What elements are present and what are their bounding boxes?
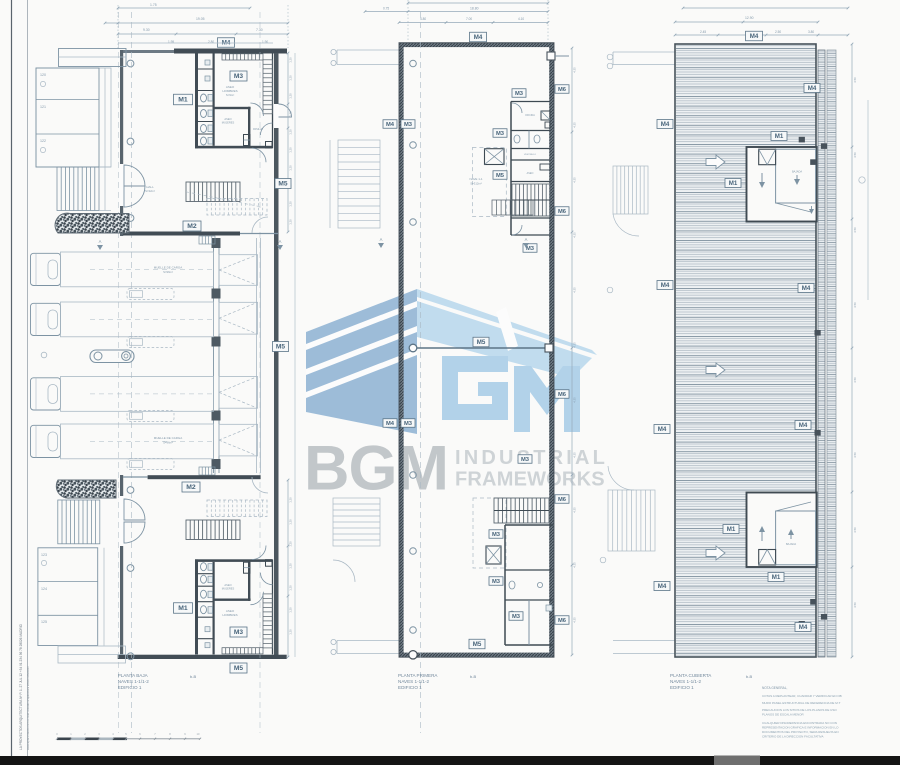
svg-text:4.10: 4.10 [518,17,524,21]
svg-text:CUALQUIER DISCREPANCIA ENCONTR: CUALQUIER DISCREPANCIA ENCONTRADA NO CON [762,721,837,725]
svg-text:ASEO: ASEO [224,583,231,587]
svg-text:PASILLO: PASILLO [253,128,263,131]
svg-text:4.35: 4.35 [573,617,577,623]
svg-text:4.35: 4.35 [573,562,577,568]
svg-text:M3: M3 [492,579,501,585]
svg-text:M3: M3 [404,421,413,427]
svg-text:M5: M5 [496,173,505,179]
svg-text:4.35: 4.35 [573,287,577,293]
svg-text:M4: M4 [802,285,811,292]
svg-text:4.35: 4.35 [573,342,577,348]
svg-text:1.20: 1.20 [289,563,293,569]
svg-text:M3: M3 [404,122,413,128]
svg-text:ASEO: ASEO [224,117,231,121]
svg-text:b-B: b-B [470,674,477,679]
svg-text:M2: M2 [186,484,196,491]
svg-text:124: 124 [41,587,47,591]
svg-text:M4: M4 [386,421,395,427]
svg-text:1.20: 1.20 [289,111,293,117]
svg-text:0.75: 0.75 [383,7,389,11]
svg-text:4.50: 4.50 [853,527,857,533]
svg-text:4.50: 4.50 [853,602,857,608]
svg-text:7.30: 7.30 [256,28,263,32]
svg-text:M6: M6 [558,618,567,624]
svg-text:M5: M5 [473,641,482,648]
svg-text:3.80: 3.80 [808,30,814,34]
svg-text:120: 120 [40,73,46,77]
svg-text:122: 122 [40,139,46,143]
svg-text:1.95: 1.95 [168,40,174,44]
svg-text:4.35: 4.35 [573,232,577,238]
svg-text:125: 125 [41,620,47,624]
svg-text:18.80: 18.80 [470,7,479,11]
svg-text:19.05: 19.05 [196,17,205,21]
svg-text:M3: M3 [521,457,530,463]
svg-text:M4: M4 [386,122,395,128]
svg-text:1.90: 1.90 [262,40,268,44]
svg-text:A: A [380,237,383,242]
svg-text:1.20: 1.20 [289,129,293,135]
svg-text:M5: M5 [276,344,285,351]
svg-text:M3: M3 [496,131,505,137]
svg-text:1.20: 1.20 [289,607,293,613]
svg-text:EDIFICIO 1: EDIFICIO 1 [398,685,422,690]
svg-text:S=96m²: S=96m² [163,270,173,274]
svg-text:EDIFICIO 1: EDIFICIO 1 [118,685,142,690]
svg-text:NAVES 1-1/1-2: NAVES 1-1/1-2 [670,679,702,684]
svg-text:4.35: 4.35 [573,67,577,73]
svg-text:LA PROYECTOS ARQUITECTURA Nº: LA PROYECTOS ARQUITECTURA Nº P. 1. 27 JU… [19,623,23,750]
svg-text:M3: M3 [526,246,535,252]
svg-text:M1: M1 [775,133,784,140]
svg-text:M3: M3 [234,629,243,636]
svg-text:ASEO: ASEO [527,172,534,175]
svg-text:M5: M5 [477,339,486,346]
svg-text:www.apfarchitects.com e-mail: www.apfarchitects.com e-mail: estudio ar… [26,667,30,750]
svg-text:M3: M3 [515,91,524,97]
svg-text:NOTA GENERAL,: NOTA GENERAL, [762,686,788,690]
svg-text:M4: M4 [750,33,759,40]
svg-text:M4: M4 [808,85,817,92]
svg-text:MUJERES: MUJERES [222,587,235,591]
svg-text:CRITERIO DE LA DIRECCION FACUL: CRITERIO DE LA DIRECCION FACULTATIVA [762,735,823,739]
svg-text:2.80: 2.80 [208,40,214,44]
svg-text:M4: M4 [661,121,670,128]
svg-text:1.75: 1.75 [150,3,157,7]
svg-text:121: 121 [40,105,46,109]
svg-text:A: A [525,237,528,242]
svg-text:NAVES 1-1/1-2: NAVES 1-1/1-2 [118,679,150,684]
svg-text:2.50: 2.50 [775,30,781,34]
svg-text:S=9m²: S=9m² [226,93,234,97]
svg-text:1.20: 1.20 [289,629,293,635]
svg-text:M5: M5 [278,181,287,188]
svg-text:S=312m²: S=312m² [470,182,481,186]
svg-text:4.35: 4.35 [573,507,577,513]
svg-text:1.20: 1.20 [289,57,293,63]
svg-text:M6: M6 [558,497,567,503]
svg-text:1.20: 1.20 [289,147,293,153]
svg-text:b-B: b-B [746,674,753,679]
svg-text:1.20: 1.20 [289,75,293,81]
svg-text:4.50: 4.50 [853,77,857,83]
svg-text:MUJERES: MUJERES [222,121,235,125]
svg-text:1.20: 1.20 [289,497,293,503]
svg-text:M1: M1 [772,574,781,581]
svg-text:M4: M4 [799,422,808,429]
svg-text:M2: M2 [187,223,197,230]
svg-text:M3: M3 [512,614,521,620]
svg-text:FRAMEWORKS: FRAMEWORKS [455,469,605,491]
svg-text:1.20: 1.20 [289,165,293,171]
svg-text:7.00: 7.00 [466,17,472,21]
svg-text:M3: M3 [492,532,501,538]
svg-text:M6: M6 [558,392,567,398]
svg-text:4.35: 4.35 [573,177,577,183]
svg-text:1.20: 1.20 [289,519,293,525]
svg-text:A: A [99,239,102,244]
svg-text:M4: M4 [799,624,808,631]
svg-text:b-B: b-B [190,674,197,679]
svg-text:M4: M4 [474,34,483,41]
svg-text:4.35: 4.35 [573,122,577,128]
svg-text:NAVE 1-1: NAVE 1-1 [469,177,482,181]
svg-text:M6: M6 [558,87,567,93]
svg-text:COTAS A REPLANTEAR, CUADRAR Y: COTAS A REPLANTEAR, CUADRAR Y VERIFICAR … [762,694,842,698]
svg-text:PLANTA CUBIERTA: PLANTA CUBIERTA [670,673,712,678]
svg-text:4.50: 4.50 [853,377,857,383]
svg-text:EDIFICIO 1: EDIFICIO 1 [670,685,694,690]
svg-text:M3: M3 [234,73,243,80]
svg-text:A: A [279,239,282,244]
svg-text:4.50: 4.50 [853,452,857,458]
svg-text:M4: M4 [658,426,667,433]
svg-text:BAJADA: BAJADA [792,170,802,174]
svg-text:OFICINA: OFICINA [525,114,535,117]
svg-text:NAVES 1-1/1-2: NAVES 1-1/1-2 [398,679,430,684]
svg-text:BAJADA: BAJADA [786,542,796,546]
svg-text:S=32m²: S=32m² [145,189,155,193]
svg-text:M1: M1 [729,180,738,187]
svg-text:VESTIBULO: VESTIBULO [524,154,537,156]
svg-text:1.20: 1.20 [289,201,293,207]
svg-text:MUELLE DE CARGA: MUELLE DE CARGA [154,266,183,270]
svg-text:DOCUMENTOS DEL PROYECTO, SERA: DOCUMENTOS DEL PROYECTO, SERA RESUELTA E… [762,730,839,734]
svg-text:MUELLE DE CARGA: MUELLE DE CARGA [154,436,183,440]
svg-text:4.50: 4.50 [853,227,857,233]
svg-text:REPRESENTACION GRAFICA E INFOR: REPRESENTACION GRAFICA E INFORMACION EN … [762,726,839,730]
svg-text:S=96m²: S=96m² [163,441,173,445]
svg-text:4.50: 4.50 [853,302,857,308]
svg-text:M4: M4 [661,282,670,289]
svg-text:2.45: 2.45 [700,30,706,34]
svg-text:12.90: 12.90 [745,16,754,20]
svg-text:M1: M1 [727,526,736,533]
svg-text:PRECAUCION LOS SITIOS DE LOS P: PRECAUCION LOS SITIOS DE LOS PLANOS DE U… [762,708,837,712]
svg-text:M1: M1 [178,97,188,104]
svg-text:M4: M4 [658,583,667,590]
svg-text:4.35: 4.35 [573,397,577,403]
svg-text:1.20: 1.20 [289,93,293,99]
svg-text:1.20: 1.20 [289,541,293,547]
svg-text:4.50: 4.50 [853,152,857,158]
svg-text:4.80: 4.80 [420,17,426,21]
svg-text:HOMBRES: HOMBRES [222,613,237,617]
svg-text:9.30: 9.30 [143,28,150,32]
svg-text:BGM: BGM [304,434,448,504]
svg-text:M5: M5 [234,665,243,672]
svg-text:4.35: 4.35 [573,452,577,458]
svg-text:123: 123 [41,553,47,557]
svg-text:1.20: 1.20 [289,219,293,225]
svg-text:PLANTA BAJA: PLANTA BAJA [118,673,149,678]
svg-text:MURO PANEL ESTRUCTURAL DE REFE: MURO PANEL ESTRUCTURAL DE REFERENCIA DE … [762,701,841,705]
svg-text:PLANTA PRIMERA: PLANTA PRIMERA [398,673,438,678]
svg-text:M1: M1 [178,605,188,612]
svg-text:M6: M6 [558,209,567,215]
svg-text:PLANOS DE ESCALA MENOR: PLANOS DE ESCALA MENOR [762,713,805,717]
svg-text:1.20: 1.20 [289,585,293,591]
